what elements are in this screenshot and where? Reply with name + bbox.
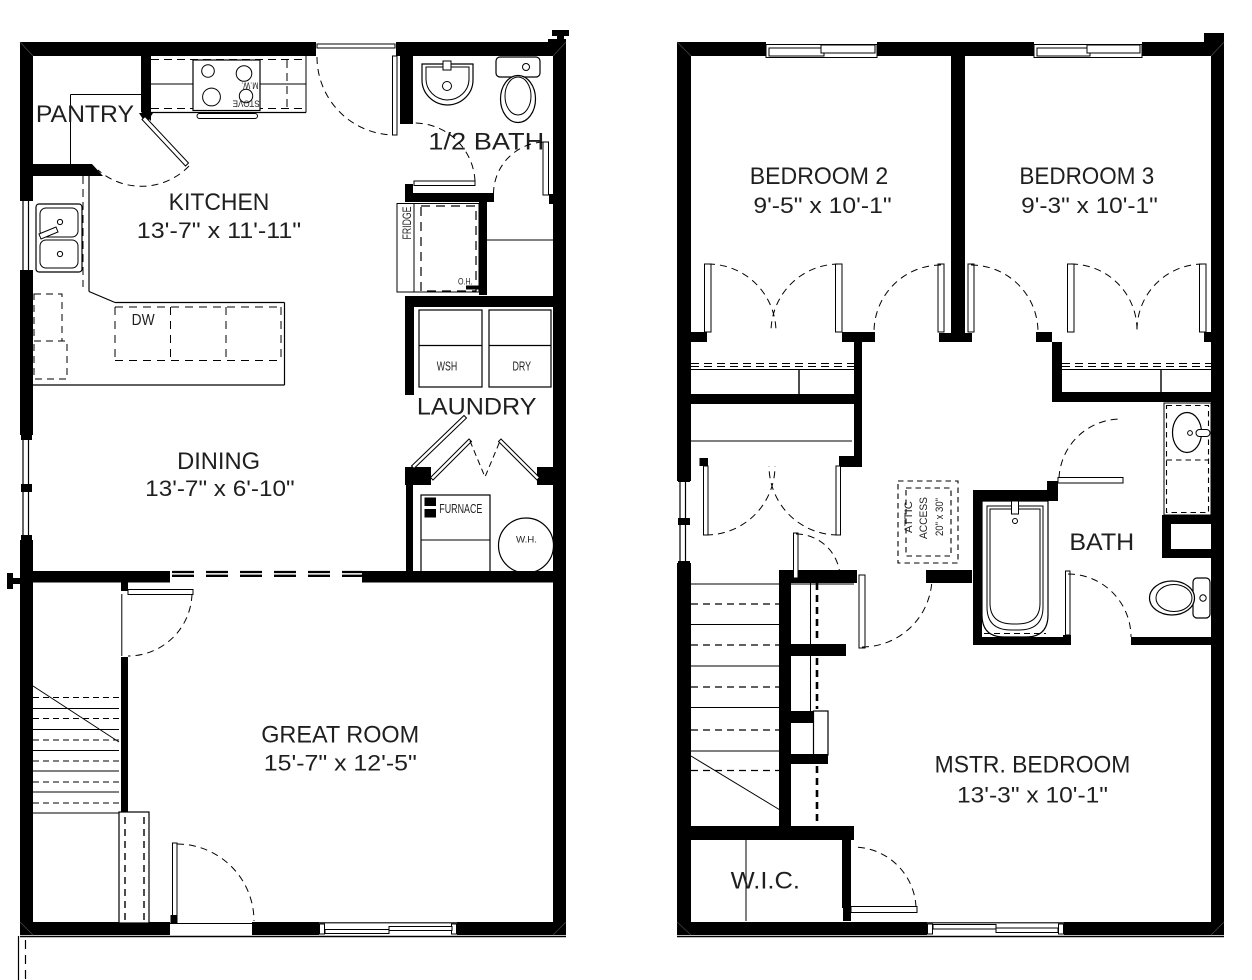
svg-text:1/2 BATH: 1/2 BATH <box>428 129 544 156</box>
svg-text:M.W.: M.W. <box>242 80 259 91</box>
svg-text:MSTR. BEDROOM: MSTR. BEDROOM <box>935 752 1131 779</box>
svg-text:ACCESS: ACCESS <box>918 497 930 539</box>
svg-text:FRIDGE: FRIDGE <box>400 207 414 240</box>
svg-text:STOVE: STOVE <box>233 97 260 108</box>
svg-text:DINING: DINING <box>177 448 260 475</box>
svg-text:ATTIC: ATTIC <box>903 501 915 533</box>
svg-text:WSH: WSH <box>437 358 458 373</box>
svg-text:9'-3" x 10'-1": 9'-3" x 10'-1" <box>1021 193 1158 218</box>
svg-text:GREAT ROOM: GREAT ROOM <box>261 722 419 749</box>
svg-text:BEDROOM 3: BEDROOM 3 <box>1019 163 1154 190</box>
svg-text:15'-7" x 12'-5": 15'-7" x 12'-5" <box>264 751 417 776</box>
svg-text:LAUNDRY: LAUNDRY <box>417 393 537 420</box>
svg-text:9'-5" x 10'-1": 9'-5" x 10'-1" <box>753 193 891 218</box>
svg-text:DRY: DRY <box>513 358 532 373</box>
svg-text:BEDROOM 2: BEDROOM 2 <box>750 163 888 190</box>
svg-text:FURNACE: FURNACE <box>439 502 482 516</box>
svg-text:W.H.: W.H. <box>516 535 537 546</box>
svg-text:KITCHEN: KITCHEN <box>169 189 270 216</box>
svg-text:W.I.C.: W.I.C. <box>731 868 800 895</box>
svg-text:13'-7" x 11'-11": 13'-7" x 11'-11" <box>137 218 301 243</box>
svg-text:13'-7" x 6'-10": 13'-7" x 6'-10" <box>145 476 294 501</box>
svg-text:13'-3" x 10'-1": 13'-3" x 10'-1" <box>957 783 1108 808</box>
svg-text:PANTRY: PANTRY <box>36 101 134 128</box>
svg-text:20" x 30": 20" x 30" <box>934 498 946 536</box>
svg-text:DW: DW <box>132 312 156 329</box>
svg-text:BATH: BATH <box>1069 529 1134 556</box>
